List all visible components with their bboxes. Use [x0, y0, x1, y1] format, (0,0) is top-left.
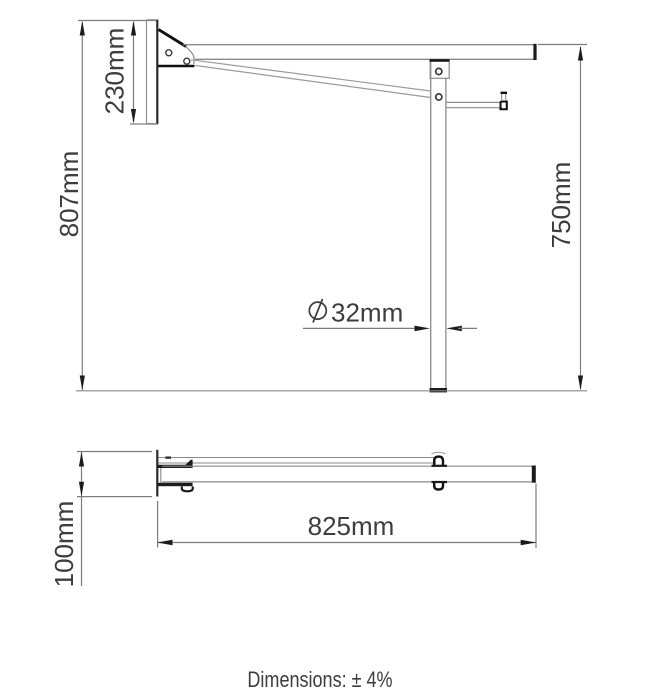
svg-text:100mm: 100mm	[49, 501, 79, 588]
svg-text:825mm: 825mm	[308, 511, 395, 541]
svg-text:750mm: 750mm	[546, 162, 576, 249]
svg-text:807mm: 807mm	[54, 151, 84, 238]
svg-text:Dimensions: ± 4%: Dimensions: ± 4%	[247, 668, 392, 692]
svg-text:32mm: 32mm	[331, 298, 403, 328]
svg-text:230mm: 230mm	[99, 28, 129, 115]
